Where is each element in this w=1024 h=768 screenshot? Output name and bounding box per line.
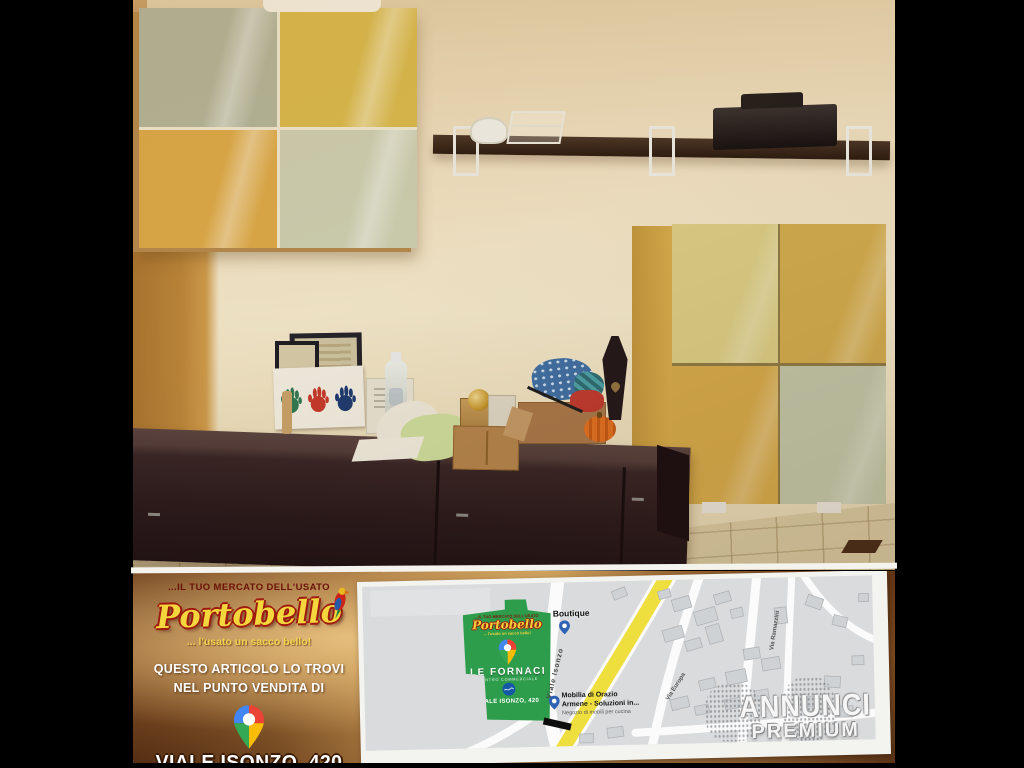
shelf-bracket bbox=[846, 126, 872, 176]
shelf-bracket bbox=[649, 126, 675, 176]
map-panel: ...IL TUO MERCATO DELL'USATO Portobello … bbox=[357, 571, 891, 763]
tall-cabinet-door-paleyellow bbox=[672, 224, 778, 363]
wall-cabinet-door-yellow bbox=[280, 8, 418, 127]
black-stereo bbox=[713, 104, 837, 150]
find-line2: NEL PUNTO VENDITA DI bbox=[133, 679, 365, 698]
poi-label-mobilia: Mobilia di Orazio Armene - Soluzioni in.… bbox=[562, 690, 675, 717]
street-map: ...IL TUO MERCATO DELL'USATO Portobello … bbox=[362, 575, 876, 751]
left-wall-strip bbox=[133, 246, 219, 442]
brand-logo-row: Portobello bbox=[133, 594, 365, 636]
find-text: QUESTO ARTICOLO LO TROVI NEL PUNTO VENDI… bbox=[133, 660, 365, 699]
poi-label-boutique: Boutique bbox=[553, 608, 590, 619]
handprint-icon bbox=[332, 382, 357, 417]
tagline-bottom: ... l'usato un sacco bello! bbox=[133, 636, 365, 648]
watermark: ANNUNCI PREMIUM bbox=[739, 691, 872, 742]
store-ad-banner: ...IL TUO MERCATO DELL'USATO Portobello … bbox=[133, 571, 895, 763]
wall-cabinet bbox=[139, 8, 417, 248]
paper-sheet bbox=[352, 436, 425, 461]
handprint-icon bbox=[306, 383, 331, 418]
cabinet-foot bbox=[702, 502, 726, 513]
drawer-handle bbox=[148, 513, 160, 516]
tall-cabinet-door-gold bbox=[780, 224, 886, 363]
find-line1: QUESTO ARTICOLO LO TROVI bbox=[133, 660, 365, 679]
wall-cabinet-door-sage bbox=[139, 8, 277, 127]
tall-cabinet-front bbox=[672, 224, 886, 504]
wire-basket bbox=[506, 111, 565, 144]
sideboard-end-panel bbox=[657, 445, 689, 541]
wall-cabinet-door-orange bbox=[139, 130, 277, 249]
room-photo bbox=[133, 0, 895, 570]
parrot-icon bbox=[329, 586, 351, 620]
cabinet-foot bbox=[817, 502, 841, 513]
poi-pin-icon bbox=[549, 695, 560, 709]
address-line1: VIALE ISONZO, 420 bbox=[136, 752, 361, 763]
gold-ball bbox=[468, 389, 490, 411]
white-container bbox=[470, 117, 508, 144]
drawer-handle bbox=[632, 498, 644, 501]
wooden-object bbox=[282, 391, 292, 434]
google-maps-pin-icon bbox=[232, 704, 266, 750]
wall-cabinet-door-pale bbox=[280, 130, 418, 249]
drawer-handle bbox=[456, 513, 468, 516]
white-object-on-cabinet bbox=[263, 0, 381, 12]
watermark-annunci: ANNUNCI bbox=[739, 690, 871, 723]
store-emblem-icon bbox=[502, 682, 515, 695]
poi-pin-icon bbox=[559, 620, 570, 634]
tall-cabinet-door-sage bbox=[780, 366, 886, 505]
portobello-logo: Portobello bbox=[155, 591, 342, 637]
promo-panel: ...IL TUO MERCATO DELL'USATO Portobello … bbox=[133, 571, 365, 763]
ad-image-canvas: ...IL TUO MERCATO DELL'USATO Portobello … bbox=[0, 0, 1024, 768]
google-maps-pin-icon bbox=[497, 638, 518, 665]
